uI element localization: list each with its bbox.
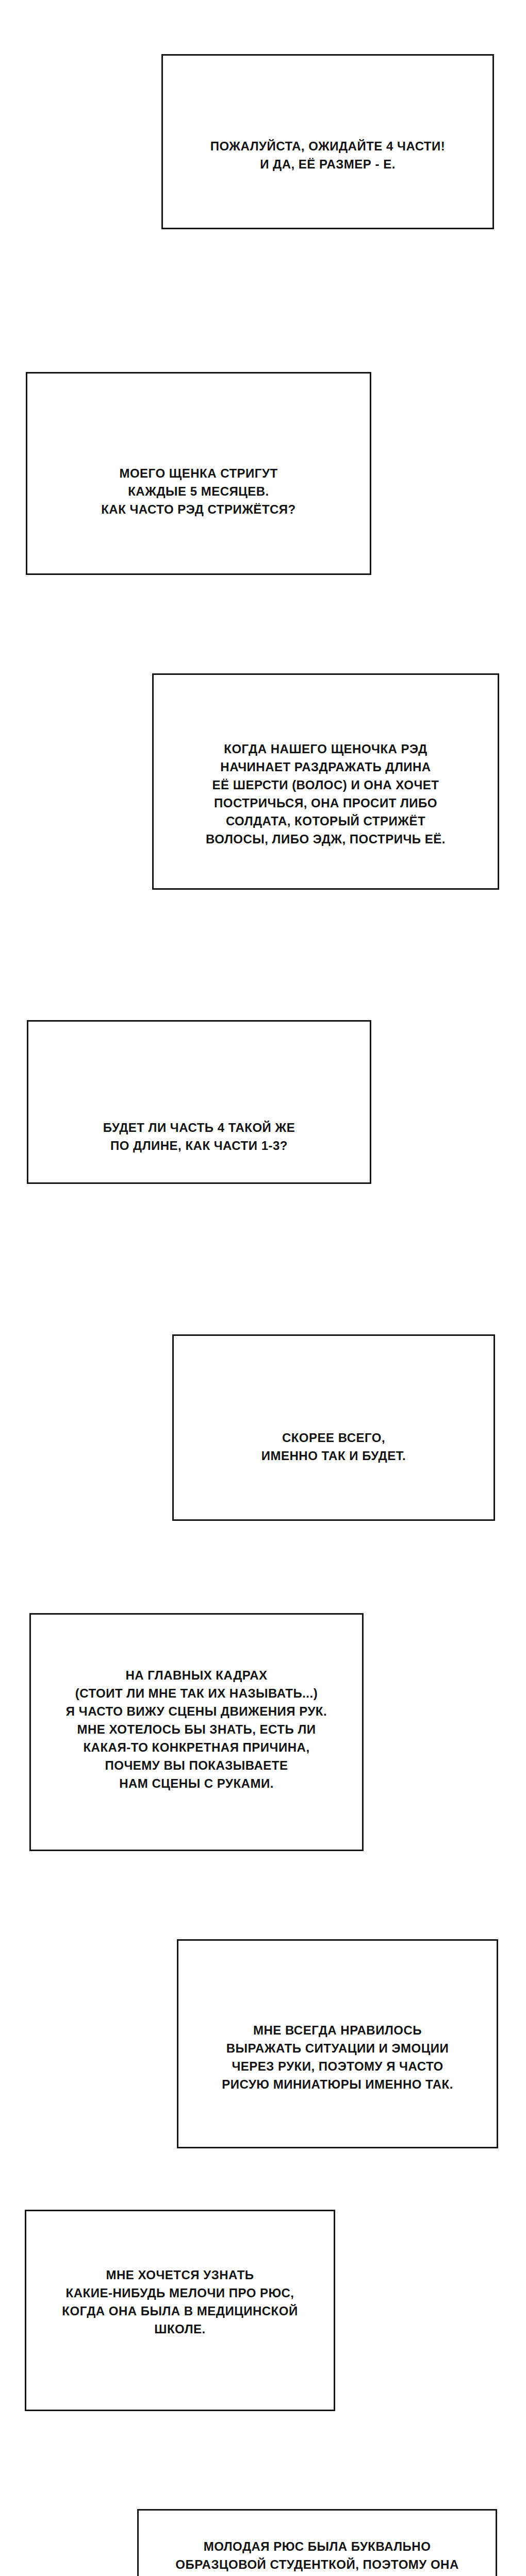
panel-6: НА ГЛАВНЫХ КАДРАХ(СТОИТ ЛИ МНЕ ТАК ИХ НА…: [29, 1613, 364, 1851]
speech-text-line: ШКОЛЕ.: [26, 2320, 334, 2338]
speech-text-line: ПО ДЛИНЕ, КАК ЧАСТИ 1-3?: [28, 1137, 370, 1155]
speech-text-line: НАЧИНАЕТ РАЗДРАЖАТЬ ДЛИНА: [154, 758, 498, 776]
speech-text-line: ВЫРАЖАТЬ СИТУАЦИИ И ЭМОЦИИ: [178, 2039, 497, 2057]
speech-text-line: ОБРАЗЦОВОЙ СТУДЕНТКОЙ, ПОЭТОМУ ОНА: [139, 2555, 496, 2573]
speech-text-line: ЧЕРЕЗ РУКИ, ПОЭТОМУ Я ЧАСТО: [178, 2057, 497, 2075]
speech-text-line: ВЫПУСТИЛАСЬ ИЗ МЕДИЦИНСКОГО БЕЗ: [139, 2573, 496, 2576]
comic-page: ПОЖАЛУЙСТА, ОЖИДАЙТЕ 4 ЧАСТИ!И ДА, ЕЁ РА…: [0, 0, 526, 2576]
speech-text-line: КАК ЧАСТО РЭД СТРИЖЁТСЯ?: [27, 500, 370, 518]
panel-4: БУДЕТ ЛИ ЧАСТЬ 4 ТАКОЙ ЖЕПО ДЛИНЕ, КАК Ч…: [27, 1020, 371, 1184]
speech-text: МНЕ ВСЕГДА НРАВИЛОСЬВЫРАЖАТЬ СИТУАЦИИ И …: [178, 2021, 497, 2093]
speech-text-line: И ДА, ЕЁ РАЗМЕР - Е.: [163, 155, 492, 173]
panel-7: МНЕ ВСЕГДА НРАВИЛОСЬВЫРАЖАТЬ СИТУАЦИИ И …: [177, 1939, 498, 2148]
speech-text-line: КАКАЯ-ТО КОНКРЕТНАЯ ПРИЧИНА,: [31, 1738, 362, 1756]
speech-text: КОГДА НАШЕГО ЩЕНОЧКА РЭДНАЧИНАЕТ РАЗДРАЖ…: [154, 740, 498, 848]
speech-text: МНЕ ХОЧЕТСЯ УЗНАТЬКАКИЕ-НИБУДЬ МЕЛОЧИ ПР…: [26, 2266, 334, 2338]
speech-text-line: ПОЖАЛУЙСТА, ОЖИДАЙТЕ 4 ЧАСТИ!: [163, 137, 492, 155]
speech-text-line: МНЕ ВСЕГДА НРАВИЛОСЬ: [178, 2021, 497, 2039]
speech-text-line: МНЕ ХОТЕЛОСЬ БЫ ЗНАТЬ, ЕСТЬ ЛИ: [31, 1720, 362, 1738]
speech-text-line: СОЛДАТА, КОТОРЫЙ СТРИЖЁТ: [154, 812, 498, 830]
panel-5: СКОРЕЕ ВСЕГО,ИМЕННО ТАК И БУДЕТ.: [172, 1334, 495, 1521]
speech-text-line: НА ГЛАВНЫХ КАДРАХ: [31, 1666, 362, 1684]
speech-text-line: МОЛОДАЯ РЮС БЫЛА БУКВАЛЬНО: [139, 2537, 496, 2555]
speech-text-line: КОГДА НАШЕГО ЩЕНОЧКА РЭД: [154, 740, 498, 758]
speech-text-line: СКОРЕЕ ВСЕГО,: [174, 1429, 494, 1447]
speech-text: БУДЕТ ЛИ ЧАСТЬ 4 ТАКОЙ ЖЕПО ДЛИНЕ, КАК Ч…: [28, 1118, 370, 1155]
speech-text-line: ЕЁ ШЕРСТИ (ВОЛОС) И ОНА ХОЧЕТ: [154, 776, 498, 794]
panel-9: МОЛОДАЯ РЮС БЫЛА БУКВАЛЬНООБРАЗЦОВОЙ СТУ…: [137, 2509, 497, 2576]
speech-text-line: ПОСТРИЧЬСЯ, ОНА ПРОСИТ ЛИБО: [154, 794, 498, 812]
speech-text-line: КАКИЕ-НИБУДЬ МЕЛОЧИ ПРО РЮС,: [26, 2284, 334, 2302]
panel-2: МОЕГО ЩЕНКА СТРИГУТКАЖДЫЕ 5 МЕСЯЦЕВ.КАК …: [26, 372, 371, 575]
panel-8: МНЕ ХОЧЕТСЯ УЗНАТЬКАКИЕ-НИБУДЬ МЕЛОЧИ ПР…: [25, 2210, 335, 2411]
speech-text: СКОРЕЕ ВСЕГО,ИМЕННО ТАК И БУДЕТ.: [174, 1429, 494, 1465]
speech-text-line: РИСУЮ МИНИАТЮРЫ ИМЕННО ТАК.: [178, 2075, 497, 2093]
speech-text: МОЕГО ЩЕНКА СТРИГУТКАЖДЫЕ 5 МЕСЯЦЕВ.КАК …: [27, 464, 370, 518]
speech-text-line: Я ЧАСТО ВИЖУ СЦЕНЫ ДВИЖЕНИЯ РУК.: [31, 1702, 362, 1720]
panel-3: КОГДА НАШЕГО ЩЕНОЧКА РЭДНАЧИНАЕТ РАЗДРАЖ…: [152, 673, 499, 890]
speech-text-line: МОЕГО ЩЕНКА СТРИГУТ: [27, 464, 370, 482]
speech-text-line: БУДЕТ ЛИ ЧАСТЬ 4 ТАКОЙ ЖЕ: [28, 1118, 370, 1137]
speech-text-line: ИМЕННО ТАК И БУДЕТ.: [174, 1447, 494, 1465]
speech-text-line: КАЖДЫЕ 5 МЕСЯЦЕВ.: [27, 482, 370, 500]
speech-text-line: МНЕ ХОЧЕТСЯ УЗНАТЬ: [26, 2266, 334, 2284]
speech-text: МОЛОДАЯ РЮС БЫЛА БУКВАЛЬНООБРАЗЦОВОЙ СТУ…: [139, 2537, 496, 2576]
speech-text-line: ПОЧЕМУ ВЫ ПОКАЗЫВАЕТЕ: [31, 1756, 362, 1774]
speech-text-line: ВОЛОСЫ, ЛИБО ЭДЖ, ПОСТРИЧЬ ЕЁ.: [154, 830, 498, 848]
speech-text-line: (СТОИТ ЛИ МНЕ ТАК ИХ НАЗЫВАТЬ...): [31, 1684, 362, 1702]
panel-1: ПОЖАЛУЙСТА, ОЖИДАЙТЕ 4 ЧАСТИ!И ДА, ЕЁ РА…: [161, 54, 494, 229]
speech-text-line: КОГДА ОНА БЫЛА В МЕДИЦИНСКОЙ: [26, 2302, 334, 2320]
speech-text: НА ГЛАВНЫХ КАДРАХ(СТОИТ ЛИ МНЕ ТАК ИХ НА…: [31, 1666, 362, 1792]
speech-text: ПОЖАЛУЙСТА, ОЖИДАЙТЕ 4 ЧАСТИ!И ДА, ЕЁ РА…: [163, 137, 492, 173]
speech-text-line: НАМ СЦЕНЫ С РУКАМИ.: [31, 1774, 362, 1792]
